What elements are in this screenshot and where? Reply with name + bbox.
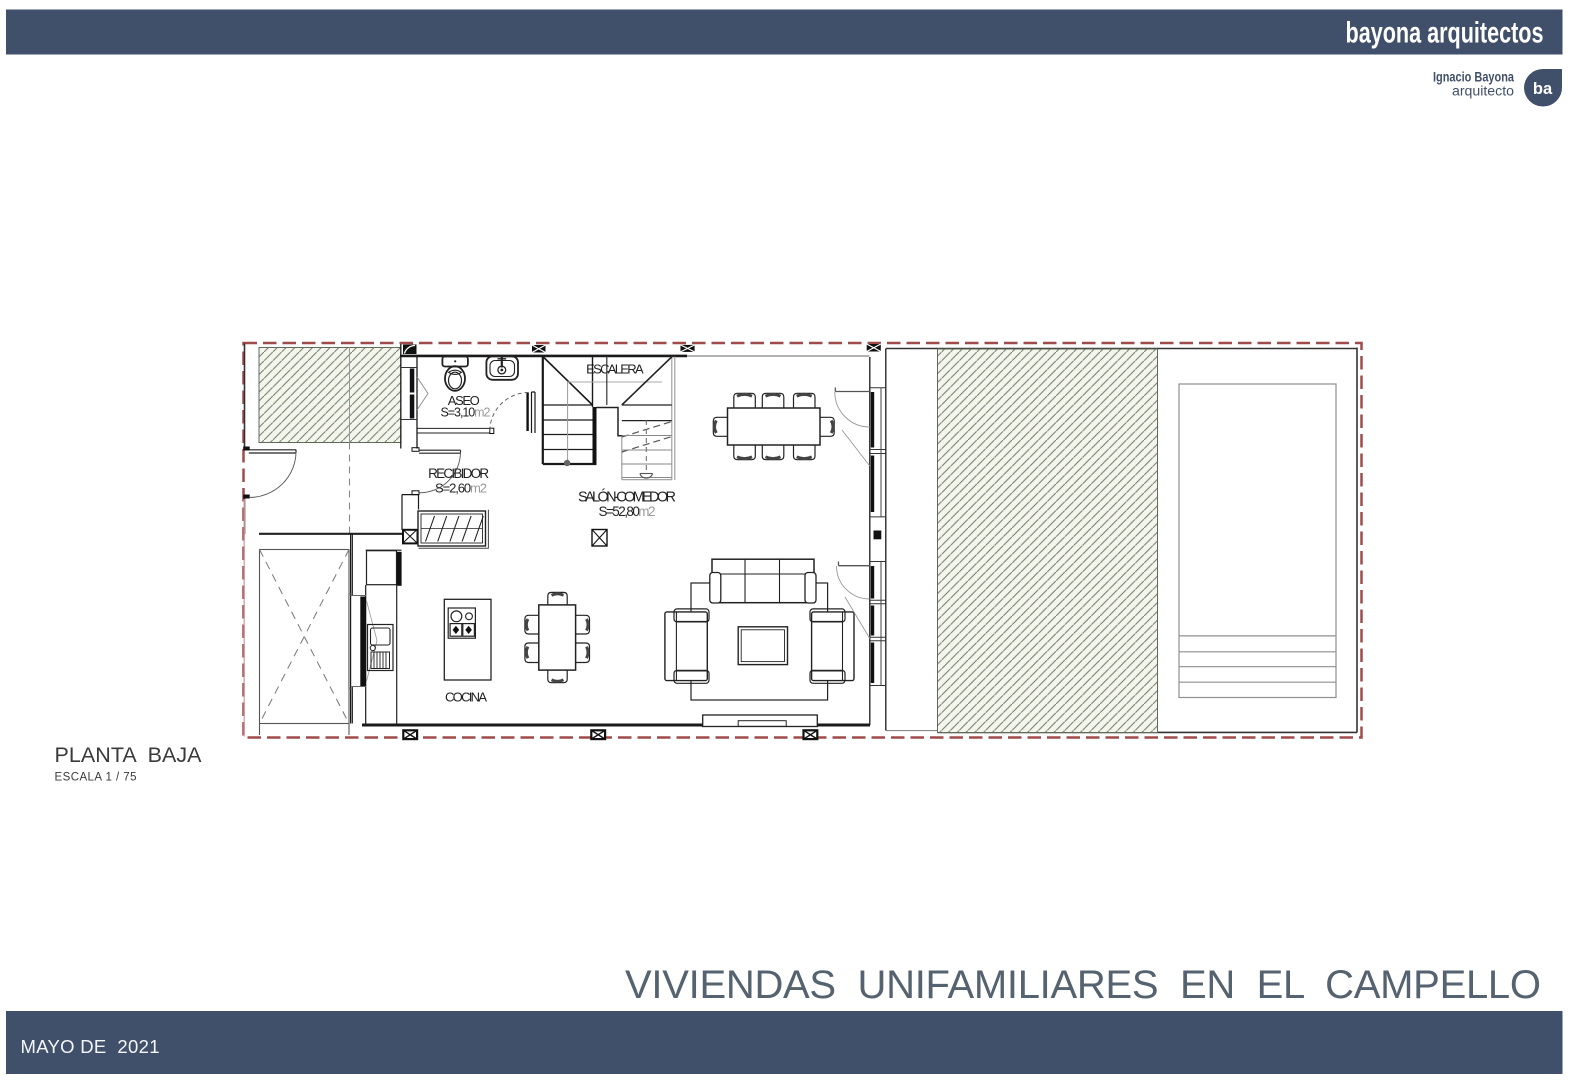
svg-text:VIVIENDAS UNIFAMILIARES EN: VIVIENDAS UNIFAMILIARES EN EL CAMPELLO bbox=[625, 963, 1541, 1007]
svg-text:MAYO DE 2021: MAYO DE 2021 bbox=[21, 1036, 160, 1057]
svg-text:S=2,60m2: S=2,60m2 bbox=[435, 481, 487, 496]
svg-text:S=3,10m2: S=3,10m2 bbox=[441, 406, 491, 420]
svg-text:ba: ba bbox=[1533, 80, 1553, 98]
svg-text:RECIBIDOR: RECIBIDOR bbox=[428, 466, 489, 481]
svg-text:arquitecto: arquitecto bbox=[1452, 84, 1514, 99]
svg-text:SALÓN-COMEDOR: SALÓN-COMEDOR bbox=[578, 489, 676, 506]
svg-text:PLANTA BAJA: PLANTA BAJA bbox=[55, 743, 203, 767]
svg-text:bayona arquitectos: bayona arquitectos bbox=[1346, 17, 1544, 50]
svg-text:COCINA: COCINA bbox=[445, 690, 487, 705]
svg-text:ESCALA 1 / 75: ESCALA 1 / 75 bbox=[55, 772, 137, 784]
svg-text:ESCALERA: ESCALERA bbox=[586, 362, 644, 377]
svg-text:Ignacio Bayona: Ignacio Bayona bbox=[1433, 70, 1514, 85]
svg-text:S=52,80m2: S=52,80m2 bbox=[599, 504, 656, 519]
